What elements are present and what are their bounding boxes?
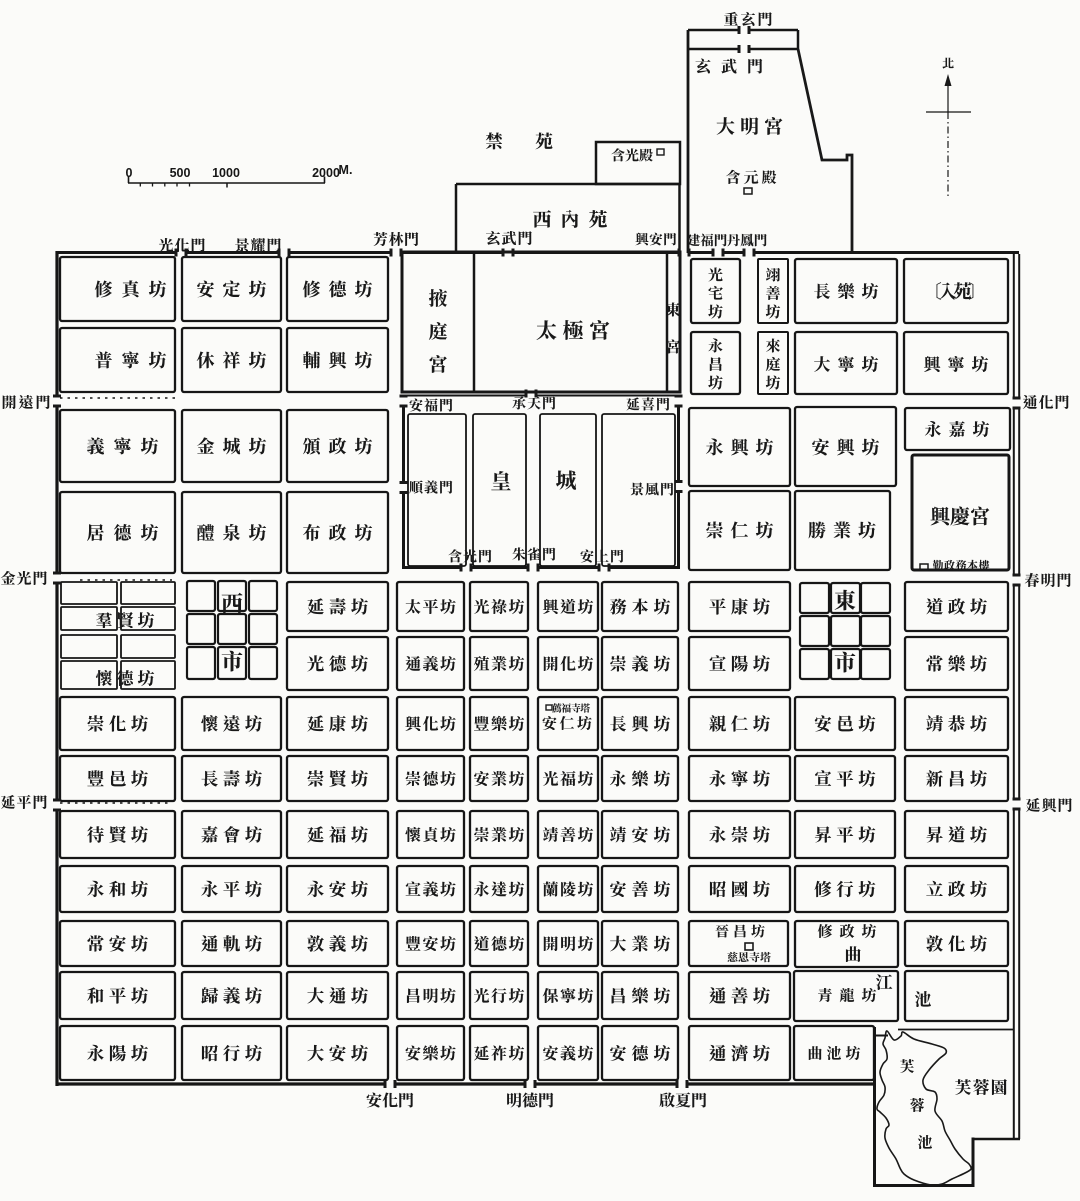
- svg-text:1000: 1000: [212, 166, 240, 180]
- svg-text:2000: 2000: [312, 166, 340, 180]
- svg-text:M.: M.: [339, 163, 353, 177]
- svg-text:500: 500: [170, 166, 191, 180]
- svg-text:0: 0: [126, 166, 133, 180]
